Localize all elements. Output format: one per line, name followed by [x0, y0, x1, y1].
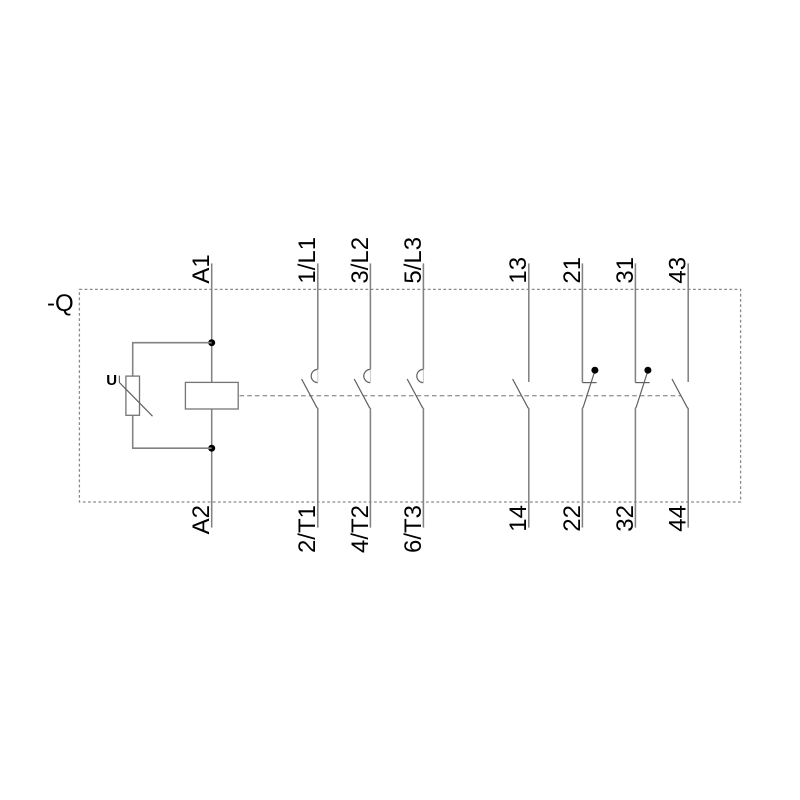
svg-text:A2: A2	[188, 505, 215, 534]
svg-text:-Q: -Q	[47, 290, 74, 317]
svg-text:32: 32	[612, 505, 639, 532]
svg-text:6/T3: 6/T3	[400, 505, 427, 553]
svg-text:14: 14	[505, 505, 532, 532]
svg-text:44: 44	[665, 505, 692, 532]
svg-text:U: U	[106, 372, 117, 389]
svg-text:4/T2: 4/T2	[347, 505, 374, 553]
svg-text:2/T1: 2/T1	[294, 505, 321, 553]
svg-text:22: 22	[559, 505, 586, 532]
